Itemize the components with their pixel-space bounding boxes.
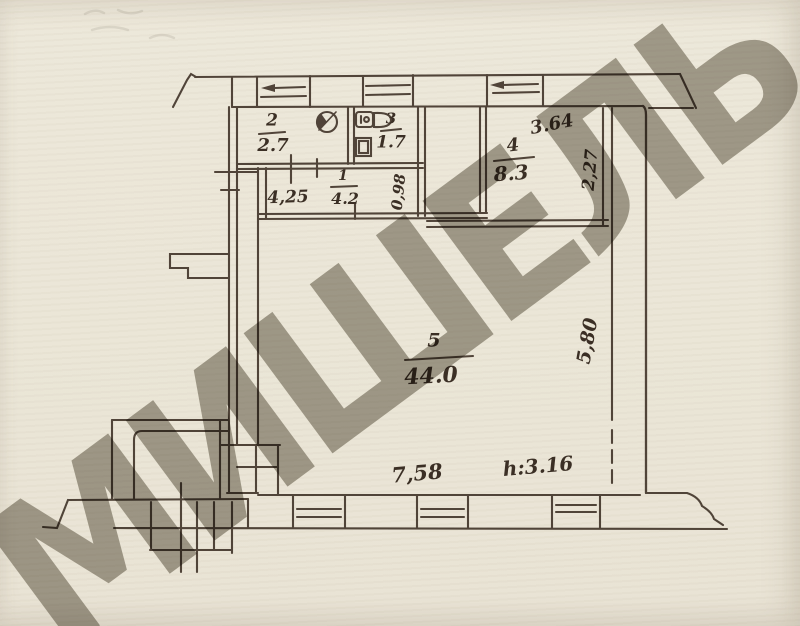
room5-number: 5 bbox=[427, 332, 440, 351]
right-outer-wall bbox=[603, 106, 646, 493]
room1-number: 1 bbox=[338, 169, 348, 183]
top-windows bbox=[261, 81, 539, 97]
sink-icon bbox=[356, 138, 371, 156]
partition-walls bbox=[238, 107, 487, 445]
dim-room4-depth: 2,27 bbox=[581, 149, 602, 192]
scanned-floor-plan: 2 2.7 3 1.7 1 4.2 4 8.3 5 44.0 4,25 3.64… bbox=[0, 0, 800, 626]
faint-pencil-marks bbox=[85, 10, 174, 38]
dim-room5-width: 7,58 bbox=[391, 460, 444, 485]
room2-number: 2 bbox=[266, 113, 278, 130]
room1-area: 4.2 bbox=[331, 191, 359, 207]
room4-number: 4 bbox=[506, 136, 520, 155]
room5-area: 44.0 bbox=[404, 364, 459, 389]
room4-walls bbox=[427, 220, 608, 227]
room2-area: 2.7 bbox=[257, 137, 288, 155]
room4-area: 8.3 bbox=[493, 162, 529, 184]
washbasin-icon bbox=[316, 112, 337, 132]
floor-plan-drawing bbox=[0, 0, 800, 626]
entrance-vestibule bbox=[43, 420, 280, 528]
dim-niche-width: 0,98 bbox=[390, 173, 409, 211]
top-outer-wall bbox=[173, 74, 696, 108]
room3-number: 3 bbox=[386, 112, 396, 127]
room3-area: 1.7 bbox=[376, 135, 406, 152]
dim-corridor-length: 4,25 bbox=[267, 189, 309, 207]
ceiling-height-label: h:3.16 bbox=[502, 453, 574, 479]
